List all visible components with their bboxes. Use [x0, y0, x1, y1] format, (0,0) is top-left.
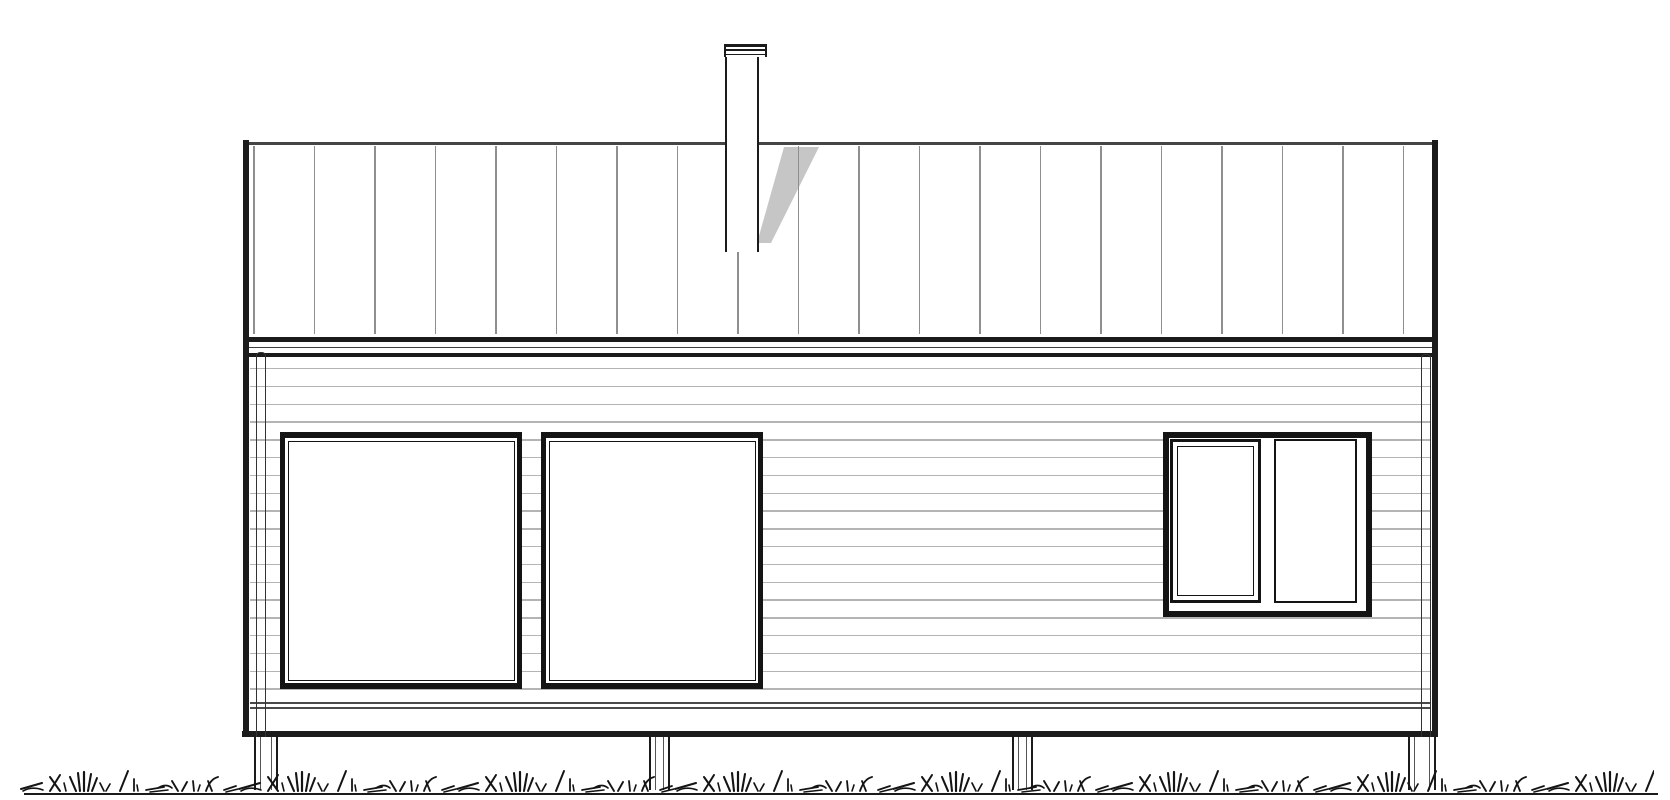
roof-seam-line: [495, 146, 497, 334]
roof-seam-line: [677, 146, 679, 334]
window-unit-opening-sash: [1170, 439, 1261, 603]
siding-line: [250, 421, 1431, 422]
chimney-cap: [724, 44, 767, 58]
window-unit: [1163, 432, 1372, 617]
large-window: [541, 432, 763, 689]
water-table-line: [250, 702, 1431, 704]
chimney-shadow: [757, 147, 819, 243]
roof-seam-line: [556, 146, 558, 334]
downspout-pipe: [1421, 354, 1431, 788]
window-unit-fixed-pane: [1274, 439, 1357, 603]
roof-seam-line: [435, 146, 437, 334]
siding-line: [250, 368, 1431, 369]
chimney-cap-band-line: [726, 54, 765, 56]
roof-seam-line: [314, 146, 316, 334]
siding-line: [250, 386, 1431, 387]
roof-seam-line: [1403, 146, 1405, 334]
roof-seam-line: [858, 146, 860, 334]
roof-seam-line: [798, 146, 800, 334]
roof-seam-line: [1342, 146, 1344, 334]
chimney-flue: [725, 57, 759, 252]
wall-bottom-bar: [242, 731, 1438, 737]
large-window-glass-line: [549, 441, 756, 681]
corner-board-right: [1432, 140, 1438, 731]
roof-seam-line: [979, 146, 981, 334]
fascia-bar: [243, 353, 1438, 358]
roof-seam-line: [374, 146, 376, 334]
roof-seam-line: [1161, 146, 1163, 334]
grass-texture: [20, 763, 1654, 794]
large-window-glass-line: [288, 441, 515, 681]
grass-field: [20, 763, 1654, 794]
roof-seam-line: [1282, 146, 1284, 334]
roof-seam-line: [1100, 146, 1102, 334]
roof-seam-line: [616, 146, 618, 334]
large-window: [280, 432, 522, 689]
eave-trim-line: [243, 347, 1438, 349]
roof-seam-line: [253, 146, 255, 334]
roof-eave-bar: [243, 337, 1438, 342]
downspout-pipe: [256, 352, 266, 790]
water-table-line: [250, 707, 1431, 709]
roof-seam-line: [1040, 146, 1042, 334]
opening-sash-glass-line: [1177, 446, 1254, 596]
corner-board-left: [243, 140, 249, 731]
roof-seam-line: [919, 146, 921, 334]
siding-line: [250, 404, 1431, 405]
chimney-cap-band-line: [726, 49, 765, 51]
roof-ridge-line: [243, 142, 1438, 145]
roof-seam-line: [1221, 146, 1223, 334]
house-elevation-drawing: [0, 0, 1670, 800]
